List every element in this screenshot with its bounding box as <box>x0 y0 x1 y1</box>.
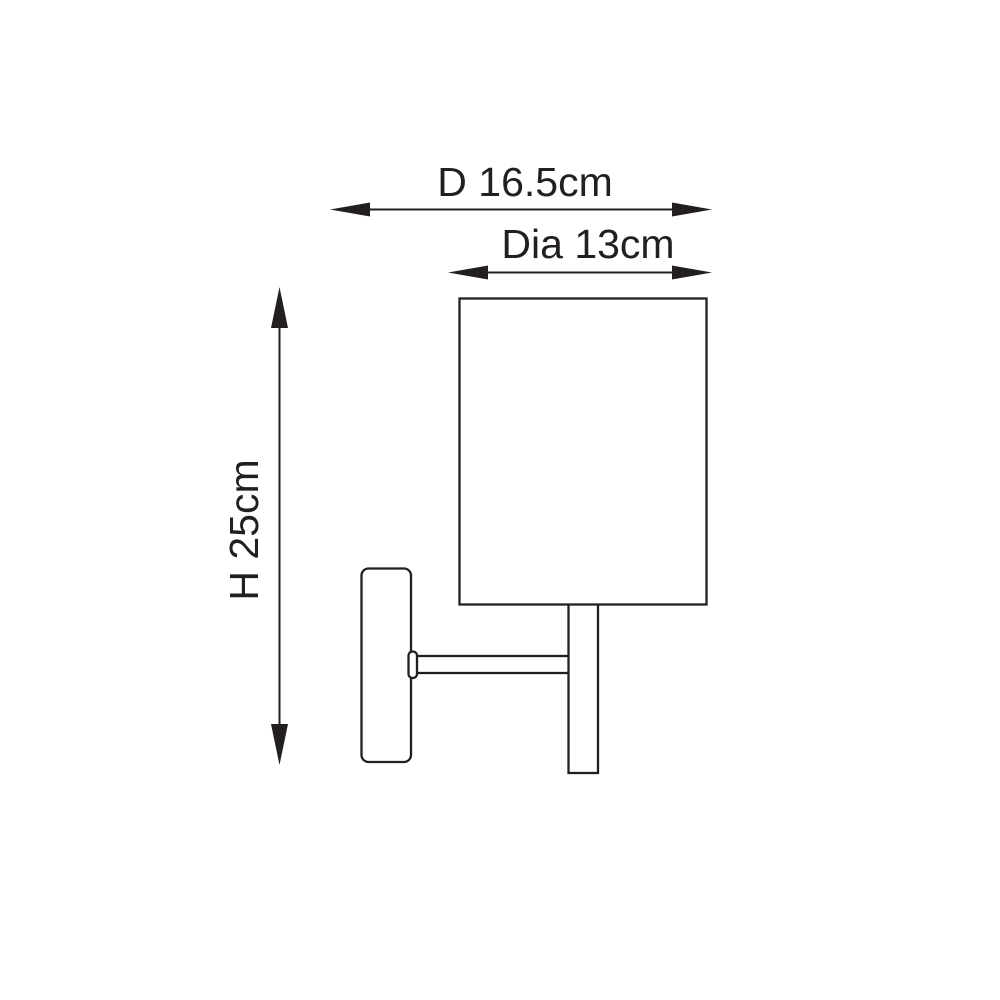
diameter-arrowhead-right <box>672 266 712 280</box>
height-dimension: H 25cm <box>221 287 288 765</box>
arm-connector-nub <box>409 652 418 679</box>
depth-dimension: D 16.5cm <box>330 159 712 217</box>
lamp-shade <box>460 299 707 605</box>
depth-arrowhead-right <box>672 203 712 217</box>
diameter-dimension: Dia 13cm <box>448 221 712 280</box>
diameter-dimension-label: Dia 13cm <box>501 221 674 267</box>
lamp-stem <box>569 604 599 773</box>
height-arrowhead-top <box>271 287 288 328</box>
diameter-arrowhead-left <box>448 266 488 280</box>
depth-arrowhead-left <box>330 203 370 217</box>
depth-dimension-label: D 16.5cm <box>437 159 612 205</box>
wall-plate <box>362 569 412 763</box>
lamp-arm <box>414 656 569 673</box>
wall-light-diagram-svg: D 16.5cm Dia 13cm H 25cm <box>0 0 1000 1000</box>
height-arrowhead-bottom <box>271 724 288 765</box>
dimension-diagram: D 16.5cm Dia 13cm H 25cm <box>0 0 1000 1000</box>
height-dimension-label: H 25cm <box>221 459 267 600</box>
wall-light-drawing <box>362 299 707 774</box>
